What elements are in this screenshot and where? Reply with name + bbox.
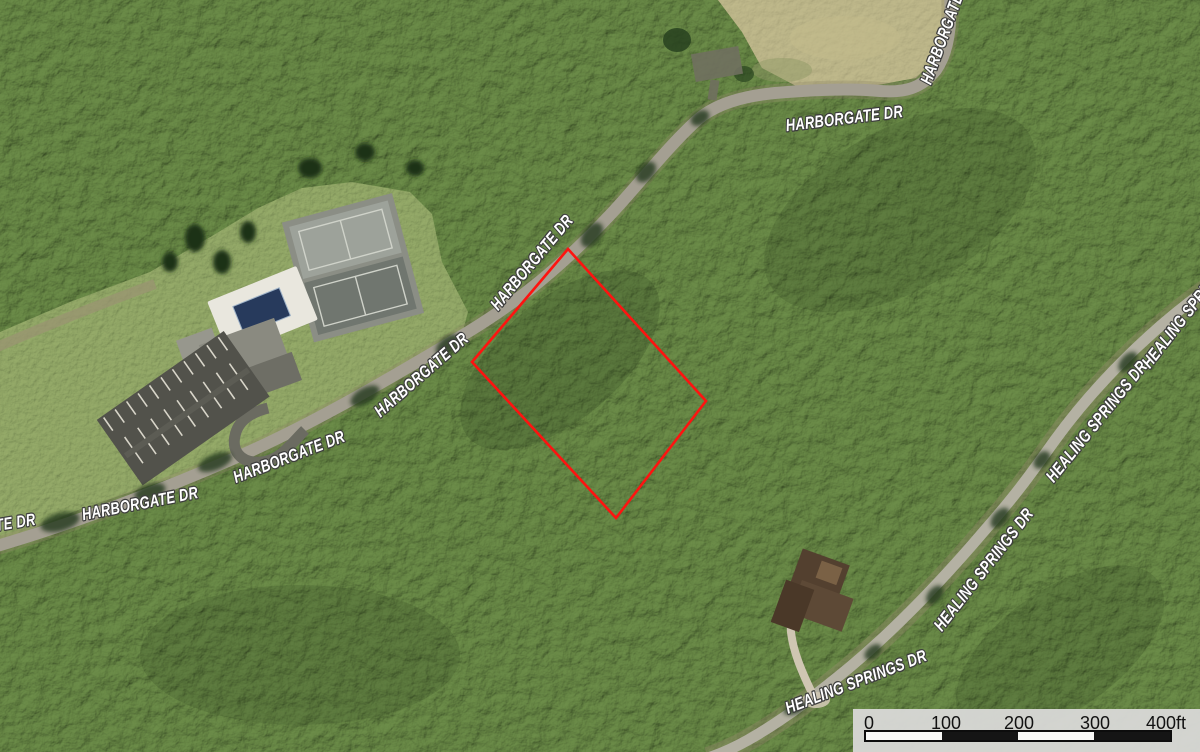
scale-bar: 0 100 200 300 400ft bbox=[853, 709, 1200, 752]
satellite-map[interactable]: HARBORGATE DR HARBORGATE DR HARBORGATE D… bbox=[0, 0, 1200, 752]
scale-bar-segments bbox=[865, 731, 1171, 741]
